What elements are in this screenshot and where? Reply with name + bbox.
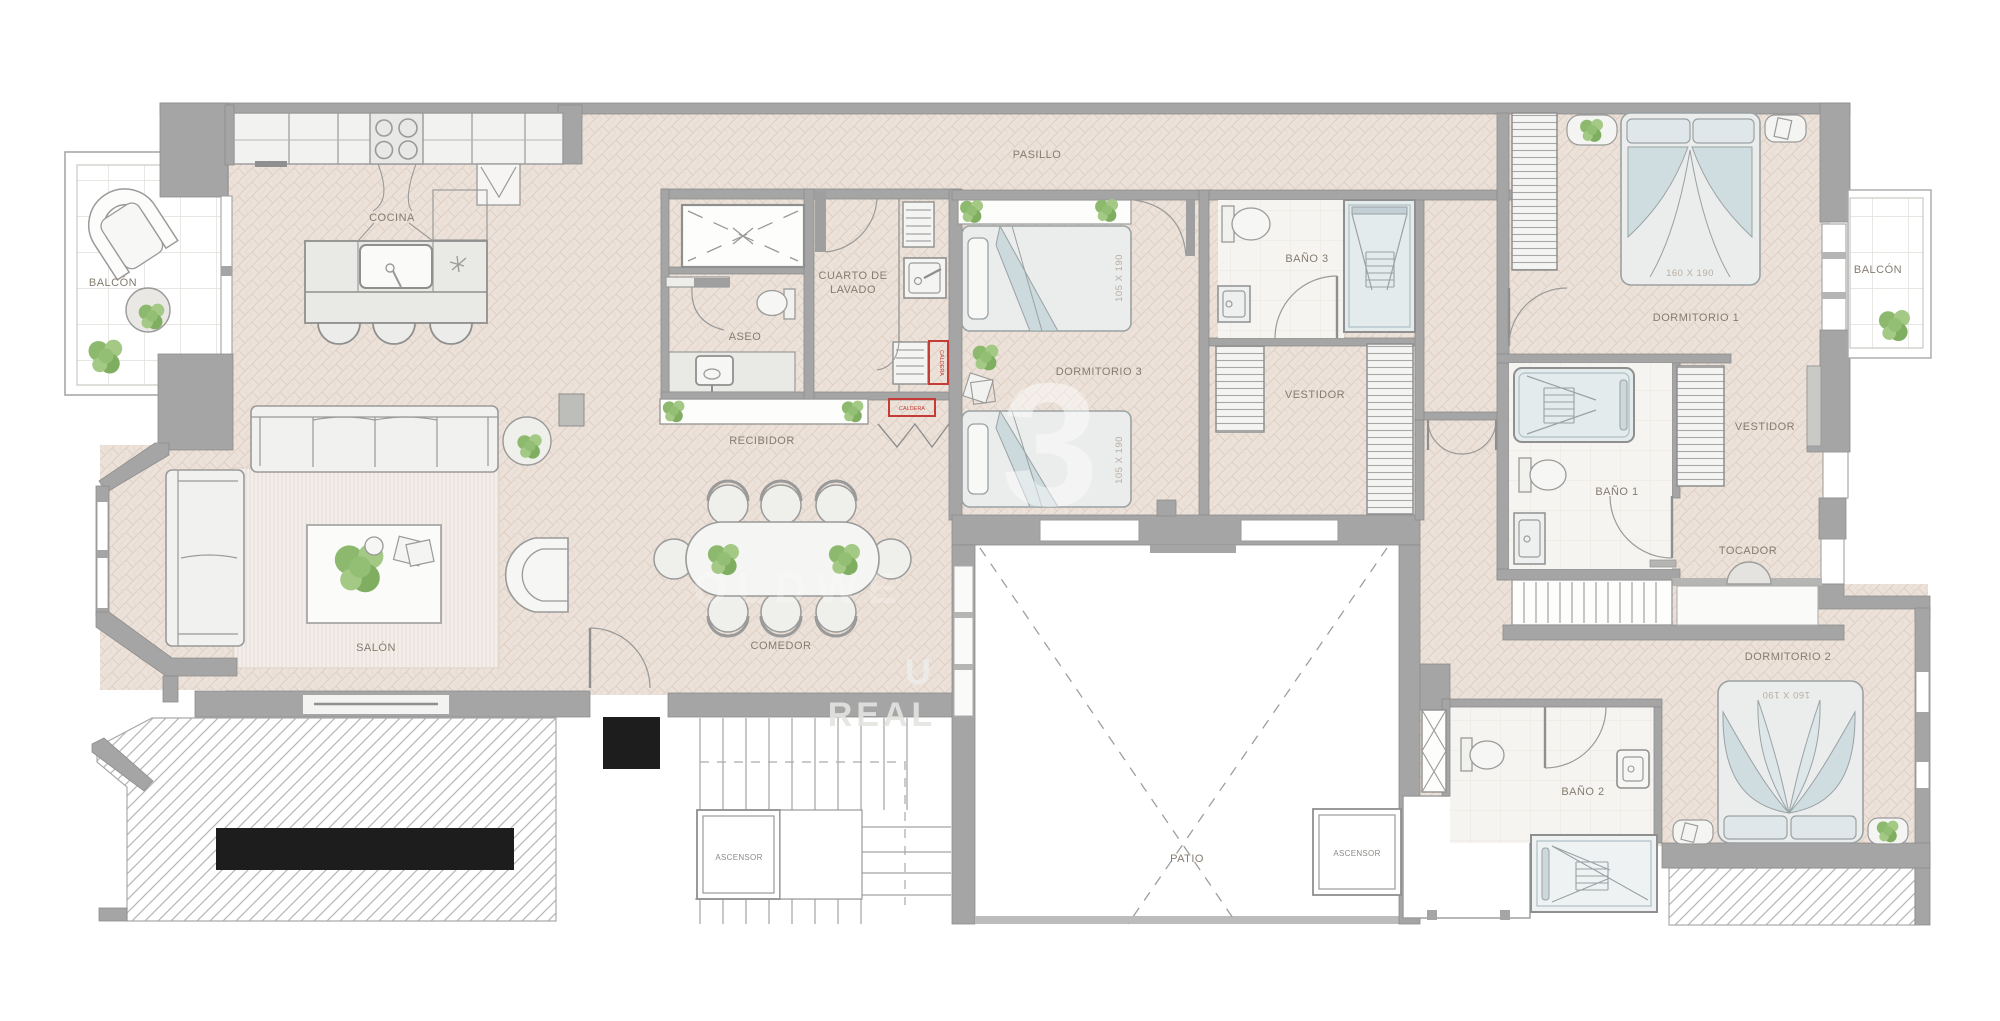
svg-text:BAÑO 2: BAÑO 2 bbox=[1561, 785, 1604, 798]
svg-text:VESTIDOR: VESTIDOR bbox=[1735, 421, 1795, 433]
svg-text:TOCADOR: TOCADOR bbox=[1719, 545, 1777, 557]
svg-text:VESTIDOR: VESTIDOR bbox=[1285, 389, 1345, 401]
svg-text:160 X 190: 160 X 190 bbox=[1666, 268, 1714, 279]
svg-text:U: U bbox=[905, 651, 935, 692]
svg-text:ASEO: ASEO bbox=[729, 331, 762, 343]
svg-text:DORMITORIO 1: DORMITORIO 1 bbox=[1653, 312, 1739, 324]
svg-text:LAVADO: LAVADO bbox=[830, 284, 876, 296]
svg-text:105 X 190: 105 X 190 bbox=[1114, 254, 1125, 302]
svg-text:DORMITORIO 2: DORMITORIO 2 bbox=[1745, 651, 1831, 663]
svg-text:SALÓN: SALÓN bbox=[356, 641, 396, 654]
svg-text:CALDERA: CALDERA bbox=[899, 406, 925, 412]
svg-text:3: 3 bbox=[1001, 348, 1098, 543]
svg-text:CALDERA: CALDERA bbox=[938, 350, 944, 376]
svg-text:BALCÓN: BALCÓN bbox=[1854, 263, 1902, 276]
svg-text:PASILLO: PASILLO bbox=[1013, 149, 1062, 161]
svg-text:COMEDOR: COMEDOR bbox=[751, 640, 812, 652]
svg-text:OLDWE: OLDWE bbox=[693, 564, 907, 613]
svg-text:REAL: REAL bbox=[828, 696, 937, 734]
svg-text:BALCÓN: BALCÓN bbox=[89, 276, 137, 289]
svg-text:CUARTO DE: CUARTO DE bbox=[819, 270, 888, 282]
svg-text:ASCENSOR: ASCENSOR bbox=[1333, 849, 1380, 858]
svg-text:160 X 190: 160 X 190 bbox=[1762, 689, 1810, 700]
svg-text:BAÑO 1: BAÑO 1 bbox=[1595, 485, 1638, 498]
svg-text:RECIBIDOR: RECIBIDOR bbox=[729, 435, 795, 447]
svg-text:PATIO: PATIO bbox=[1170, 853, 1204, 865]
svg-text:COCINA: COCINA bbox=[369, 212, 415, 224]
svg-text:105 X 190: 105 X 190 bbox=[1114, 436, 1125, 484]
svg-text:ASCENSOR: ASCENSOR bbox=[715, 853, 762, 862]
svg-text:BAÑO 3: BAÑO 3 bbox=[1285, 252, 1328, 265]
